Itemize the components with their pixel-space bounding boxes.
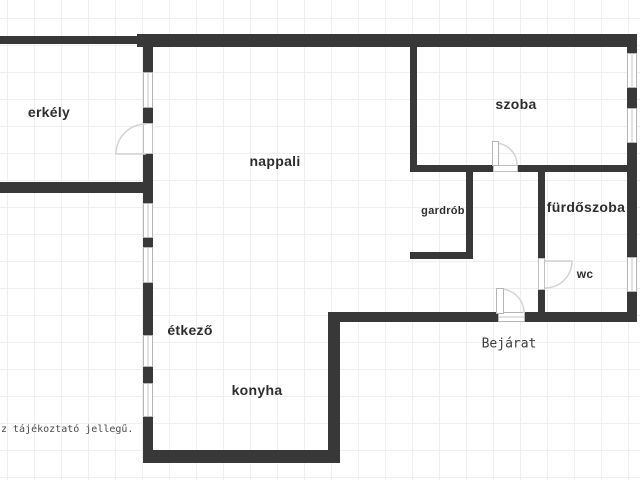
wardrobe-right-wall <box>466 165 473 259</box>
window-left-5 <box>143 383 153 417</box>
room-label-konyha: konyha <box>232 382 283 398</box>
balcony-top-wall <box>0 36 137 44</box>
balcony-bottom-wall <box>0 182 153 193</box>
room-door-threshold <box>493 165 518 172</box>
window-left-3 <box>143 247 153 283</box>
window-left-2 <box>143 203 153 238</box>
entrance-door-leaf <box>496 288 504 314</box>
bathroom-left-wall <box>538 165 545 322</box>
window-right-3 <box>627 257 637 292</box>
room-label-wc: wc <box>577 267 594 281</box>
room-label-gardrob: gardrób <box>421 205 465 217</box>
room-label-etkezo: étkező <box>167 322 212 338</box>
window-left-1 <box>143 72 153 108</box>
main-top-wall <box>137 34 637 47</box>
room-label-nappali: nappali <box>249 153 300 169</box>
window-right-1 <box>627 53 637 88</box>
window-right-2 <box>627 108 637 143</box>
hall-bottom-wall <box>328 312 637 322</box>
room-bottom-wall <box>410 165 637 172</box>
disclaimer-label: z tájékoztató jellegű. <box>1 424 133 435</box>
room-label-furdoszoba: fürdőszoba <box>547 199 625 215</box>
livingroom-room-divider-wall <box>410 34 417 171</box>
entrance-label: Bejárat <box>482 337 537 352</box>
window-left-4 <box>143 335 153 367</box>
wardrobe-bottom-wall <box>410 252 473 259</box>
room-door-leaf <box>492 141 499 166</box>
floor-plan: erkély nappali szoba gardrób fürdőszoba … <box>0 0 640 480</box>
kitchen-bottom-wall <box>143 450 340 463</box>
wc-door-swing <box>545 261 572 288</box>
room-label-szoba: szoba <box>495 96 536 112</box>
kitchen-right-wall <box>328 312 340 463</box>
balcony-door-threshold <box>143 123 153 154</box>
room-label-erkely: erkély <box>28 104 70 120</box>
wc-door-threshold <box>538 258 545 290</box>
balcony-door-swing <box>116 124 146 154</box>
